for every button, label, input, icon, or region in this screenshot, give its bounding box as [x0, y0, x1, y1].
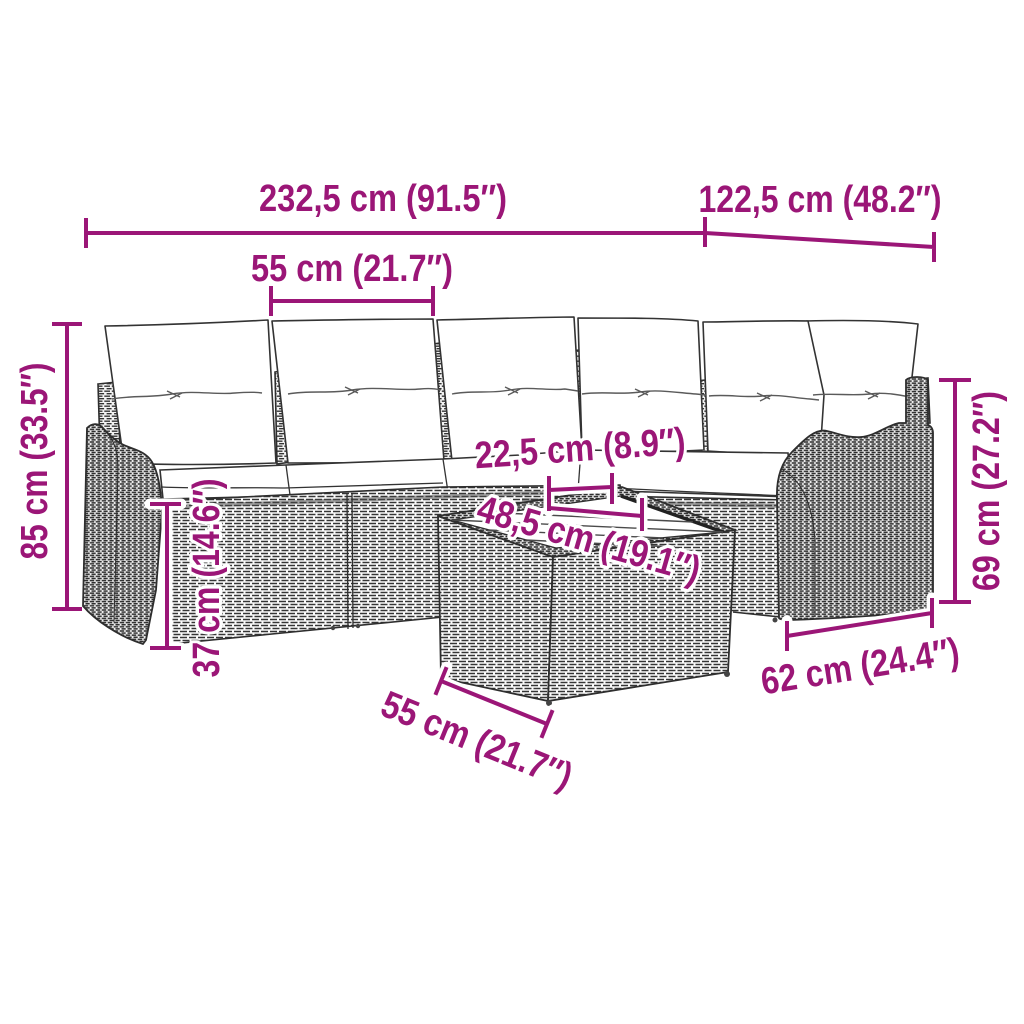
- svg-text:55 cm (21.7″): 55 cm (21.7″): [251, 248, 453, 290]
- svg-text:69 cm (27.2″): 69 cm (27.2″): [966, 391, 1008, 591]
- svg-text:85 cm (33.5″): 85 cm (33.5″): [14, 363, 56, 560]
- svg-text:37 cm (14.6″): 37 cm (14.6″): [186, 479, 228, 678]
- svg-text:232,5 cm (91.5″): 232,5 cm (91.5″): [259, 178, 507, 220]
- svg-text:122,5 cm (48.2″): 122,5 cm (48.2″): [699, 179, 942, 221]
